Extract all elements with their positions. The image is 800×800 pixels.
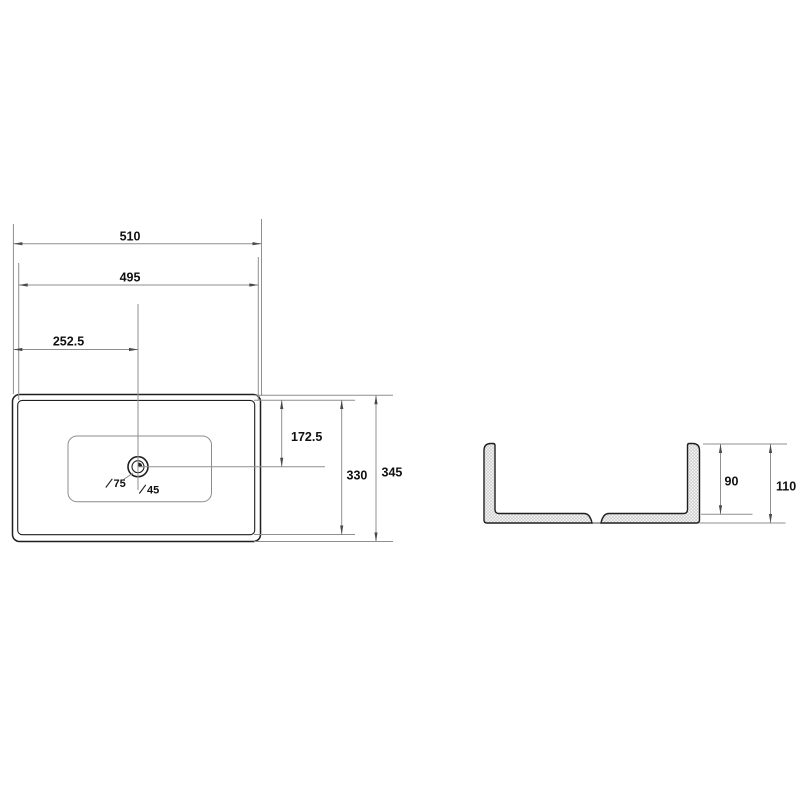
arrow-up-icon [340, 400, 343, 409]
top-view-extension-lines [13, 219, 393, 542]
top-view: 510 495 252.5 172.5 330 [13, 219, 403, 542]
arrow-up-icon [280, 400, 283, 409]
section-left-wall [484, 444, 592, 524]
dim-inner-depth: 90 [719, 444, 739, 514]
dim-overall-height-label: 110 [776, 480, 796, 494]
dim-drain-inner-dia-label: 45 [147, 485, 159, 497]
dim-rim-depth-label: 330 [347, 469, 368, 483]
arrow-right-icon [253, 242, 262, 245]
arrow-right-icon [129, 348, 138, 351]
dim-drain-outer-dia: 75 [106, 473, 133, 490]
basin-outer-rim [13, 395, 261, 542]
dim-inner-depth-label: 90 [725, 475, 739, 489]
arrow-right-icon [249, 283, 258, 286]
dim-drain-outer-dia-label: 75 [114, 478, 126, 490]
arrow-down-icon [280, 458, 283, 467]
arrow-up-icon [719, 444, 722, 453]
diameter-slash-icon [106, 479, 113, 488]
dim-overall-width-label: 510 [120, 230, 141, 244]
arrow-down-icon [374, 533, 377, 542]
arrow-left-icon [13, 348, 22, 351]
arrow-down-icon [340, 526, 343, 535]
arrow-down-icon [769, 514, 772, 523]
arrow-up-icon [769, 444, 772, 453]
dim-rim-width: 495 [19, 271, 259, 287]
arrow-left-icon [19, 283, 28, 286]
dim-overall-depth: 345 [374, 395, 402, 541]
technical-drawing-page: 510 495 252.5 172.5 330 [0, 0, 800, 800]
arrow-left-icon [13, 242, 22, 245]
arrow-up-icon [374, 395, 377, 404]
dim-rim-width-label: 495 [120, 271, 141, 285]
dim-drain-offset-y: 172.5 [280, 400, 322, 467]
dim-drain-offset-x: 252.5 [13, 335, 138, 352]
section-right-wall [601, 444, 700, 524]
technical-drawing: 510 495 252.5 172.5 330 [0, 0, 800, 800]
dim-drain-inner-dia: 45 [139, 485, 159, 497]
diameter-slash-icon [139, 485, 146, 494]
dim-rim-depth: 330 [340, 400, 367, 535]
dim-overall-depth-label: 345 [382, 466, 403, 480]
dim-overall-height: 110 [769, 444, 796, 523]
dim-drain-offset-x-label: 252.5 [53, 335, 84, 349]
side-view-extension-lines [700, 444, 788, 523]
drain-center-mark [138, 462, 142, 466]
dim-overall-width: 510 [13, 230, 261, 246]
basin-inner-rim [18, 400, 255, 534]
basin-bowl [68, 436, 212, 502]
side-view: 90 110 [484, 444, 796, 524]
dim-drain-offset-y-label: 172.5 [291, 430, 322, 444]
arrow-down-icon [719, 505, 722, 514]
